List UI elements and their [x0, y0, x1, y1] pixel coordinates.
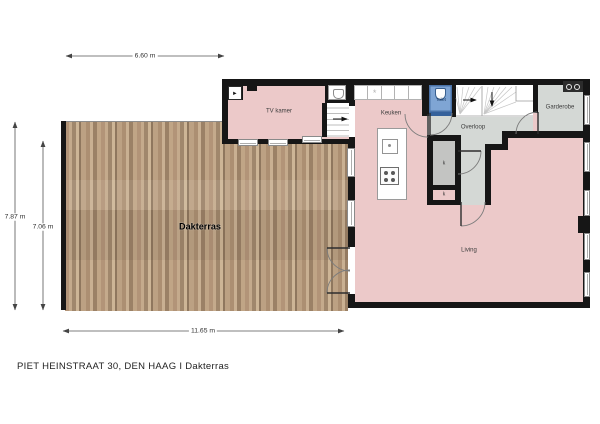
dimension-label-left-inner: 7.06 m	[31, 223, 56, 230]
door-garderobe	[516, 112, 537, 134]
room-label-toilet: Toilet	[436, 98, 446, 103]
door-toilet	[430, 113, 452, 135]
door-closet	[458, 151, 481, 174]
closet-label-small: k	[443, 191, 446, 197]
stair-arrows	[333, 92, 492, 119]
room-label-living: Living	[461, 247, 477, 254]
closet-label-large: k	[443, 160, 446, 166]
room-label-keuken: Keuken	[381, 110, 401, 117]
door-keuken	[405, 114, 428, 137]
room-label-dakterras: Dakterras	[179, 221, 221, 231]
dimension-label-bottom: 11.65 m	[189, 327, 217, 334]
footer-caption: PIET HEINSTRAAT 30, DEN HAAG I Dakterras	[17, 361, 229, 372]
door-living	[461, 202, 485, 226]
floorplan-canvas: * ▶	[0, 0, 600, 424]
dimension-lines	[15, 56, 344, 331]
dimension-label-left-outer: 7.87 m	[3, 213, 28, 220]
door-leaves	[327, 112, 538, 293]
french-door-top	[327, 248, 350, 271]
french-door-bottom	[327, 270, 350, 293]
door-arcs	[327, 112, 537, 293]
room-label-overloop: Overloop	[461, 124, 485, 131]
room-label-garderobe: Garderobe	[546, 104, 575, 111]
room-label-tv-kamer: TV kamer	[266, 108, 292, 115]
dimension-label-top: 6.60 m	[133, 52, 158, 59]
